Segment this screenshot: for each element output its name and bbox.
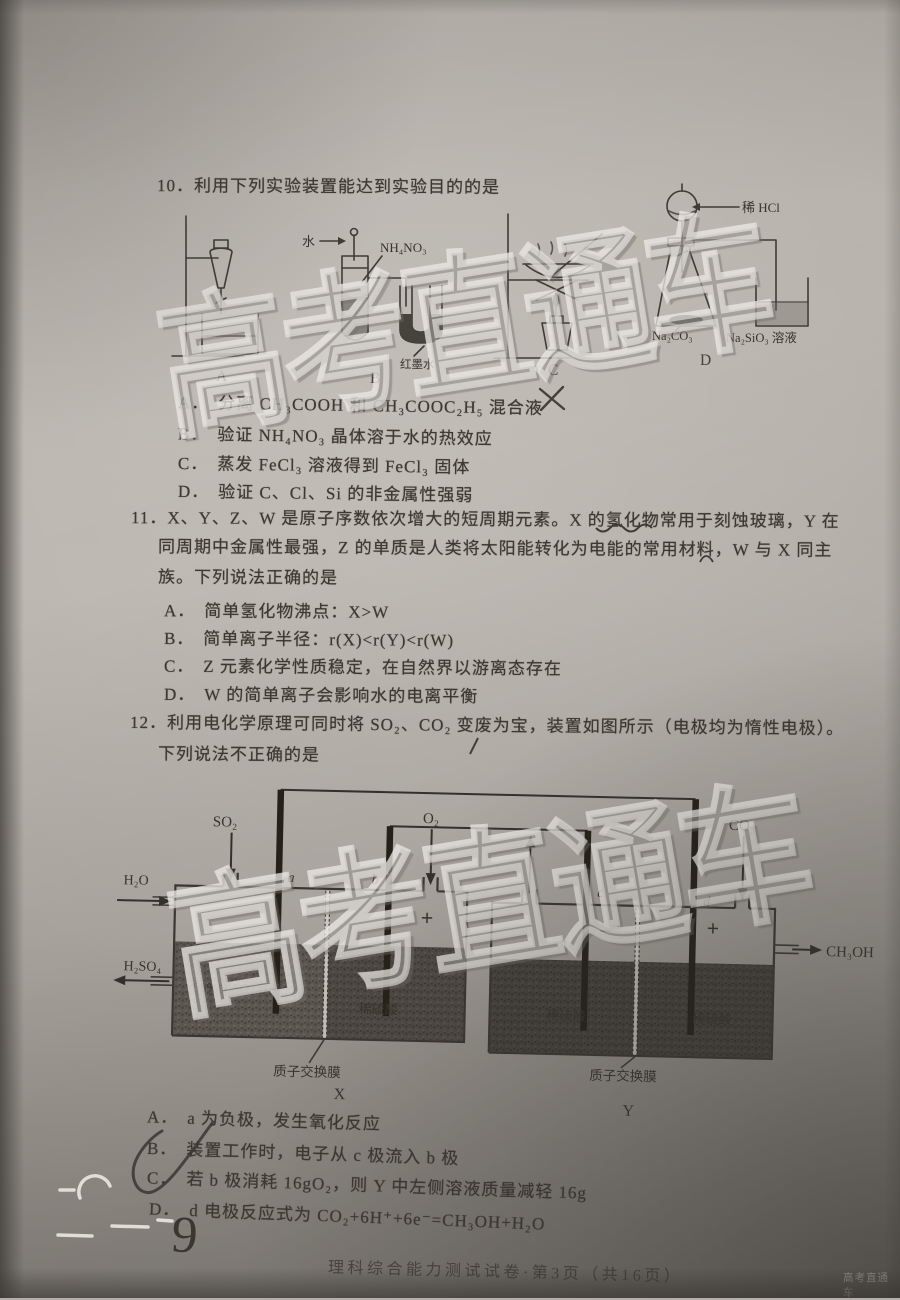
- apparatus-c-label: C: [548, 362, 558, 380]
- q11-option-b-text: 简单离子半径：r(X)<r(Y)<r(W): [203, 629, 454, 650]
- q12-option-a-letter: A．: [147, 1102, 179, 1128]
- q11-stem-line3: 族。下列说法正确的是: [158, 563, 338, 589]
- q12-option-b-text: 装置工作时，电子从 c 极流入 b 极: [186, 1140, 460, 1168]
- inner-wire: [390, 826, 588, 830]
- q12-option-d: D．d 电极反应式为 CO₂+6H⁺+6e⁻=CH₃OH+H₂O: [149, 1194, 546, 1234]
- co2-label: CO₂: [729, 818, 755, 835]
- water-label: 水: [302, 234, 315, 249]
- q11-option-d-text: W 的简单离子会影响水的电离平衡: [204, 685, 478, 706]
- membrane-y-label: 质子交换膜: [589, 1067, 657, 1085]
- ammonium-nitrate-label: NH₄NO₃: [380, 240, 427, 255]
- q11-option-c-letter: C．: [164, 652, 195, 677]
- minus-sign-c: −: [598, 919, 612, 945]
- membrane-x-label: 质子交换膜: [273, 1063, 341, 1081]
- q11-option-b: B．简单离子半径：r(X)<r(Y)<r(W): [164, 624, 454, 651]
- dilute-acid-x-label: 稀硫酸: [359, 1002, 398, 1018]
- electrolysis-diagram: a b c d SO₂ O₂ CO₂ H₂O H₂SO₄ CH₃OH +: [108, 772, 895, 1125]
- q10-option-c-letter: C．: [178, 449, 209, 474]
- q10-option-a: A．分离 CH₃COOH 和 CH₃COOC₂H₅ 混合液: [178, 388, 543, 419]
- q12-option-d-text: d 电极反应式为 CO₂+6H⁺+6e⁻=CH₃OH+H₂O: [189, 1201, 546, 1234]
- q11-stem-line1: 11．X、Y、Z、W 是原子序数依次增大的短周期元素。X 的氢化物常用于刻蚀玻璃…: [131, 503, 840, 532]
- apparatus-a-drawing: [170, 210, 295, 375]
- q12-option-b-letter: B．: [147, 1134, 178, 1160]
- q12-stem-line2: 下列说法不正确的是: [158, 739, 320, 765]
- red-ink-label: 红墨水: [400, 358, 435, 371]
- q12-option-b: B．装置工作时，电子从 c 极流入 b 极: [147, 1134, 460, 1169]
- plus-sign-d: +: [706, 915, 719, 940]
- q12-option-d-letter: D．: [149, 1194, 181, 1220]
- electrode-b-label: b: [371, 873, 378, 888]
- h2so4-label: H₂SO₄: [123, 959, 161, 975]
- apparatus-c-drawing: [490, 210, 650, 375]
- apparatus-b-drawing: 水 NH₄NO₃ 红墨水: [296, 226, 466, 376]
- q11-option-c: C．Z 元素化学性质稳定，在自然界以游离态存在: [164, 652, 562, 680]
- o2-label: O₂: [423, 811, 439, 827]
- q10-option-c: C．蒸发 FeCl₃ 溶液得到 FeCl₃ 固体: [178, 449, 471, 478]
- ch3oh-label: CH₃OH: [826, 944, 874, 961]
- q10-option-a-letter: A．: [178, 388, 210, 413]
- apparatus-b-label: B: [370, 370, 380, 388]
- q10-option-b-text: 验证 NH₄NO₃ 晶体溶于水的热效应: [217, 425, 493, 448]
- q10-option-b-letter: B．: [178, 420, 209, 445]
- apparatus-d-label: D: [700, 352, 711, 370]
- q10-option-d-text: 验证 C、Cl、Si 的非金属性强弱: [218, 483, 473, 506]
- q10-option-d: D．验证 C、Cl、Si 的非金属性强弱: [178, 477, 474, 506]
- gas-out-arrow: [525, 835, 535, 847]
- q11-option-a: A．简单氢化物沸点：X>W: [164, 596, 389, 623]
- q11-stem-line2: 同周期中金属性最强，Z 的单质是人类将太阳能转化为电能的常用材料，W 与 X 同…: [158, 532, 833, 561]
- outer-wire: [281, 790, 696, 799]
- q10-option-c-text: 蒸发 FeCl₃ 溶液得到 FeCl₃ 固体: [217, 455, 470, 478]
- q10-option-a-text: 分离 CH₃COOH 和 CH₃COOC₂H₅ 混合液: [218, 394, 543, 418]
- q11-option-d: D．W 的简单离子会影响水的电离平衡: [164, 680, 478, 707]
- left-solution-label: 50%H₂SO₄溶液: [193, 980, 282, 997]
- q11-option-a-letter: A．: [164, 596, 195, 621]
- cell-x-label: X: [334, 1086, 346, 1103]
- q10-option-b: B．验证 NH₄NO₃ 晶体溶于水的热效应: [178, 420, 493, 450]
- q12-option-a-text: a 为负极，发生氧化反应: [187, 1109, 381, 1134]
- q12-option-c-letter: C．: [147, 1163, 178, 1189]
- apparatus-d-drawing: 稀 HCl Na₂CO₃ Na₂SiO₃ 溶液: [638, 180, 853, 375]
- watermark-small: 高考直通车: [843, 1270, 900, 1300]
- q11-option-b-letter: B．: [164, 624, 195, 649]
- q12-stem-line1: 12．利用电化学原理可同时将 SO₂、CO₂ 变废为宝，装置如图所示（电极均为惰…: [130, 708, 844, 739]
- sodium-silicate-label: Na₂SiO₃ 溶液: [726, 330, 797, 345]
- q10-stem: 10．利用下列实验装置能达到实验目的的是: [157, 171, 500, 198]
- q11-option-d-letter: D．: [164, 680, 195, 705]
- dilute-acid-y-right-label: 稀硫酸: [692, 1011, 731, 1027]
- q11-option-a-text: 简单氢化物沸点：X>W: [204, 601, 389, 621]
- dilute-hcl-label: 稀 HCl: [742, 200, 780, 215]
- exam-page: 10．利用下列实验装置能达到实验目的的是 A 水 NH₄NO₃ 红墨水 B: [0, 0, 900, 1298]
- electrode-c-label: c: [597, 886, 604, 901]
- dilute-acid-y-left-label: 稀硫酸: [546, 1008, 585, 1024]
- page-footer: 理科综合能力测试试卷·第3页（共16页）: [328, 1253, 684, 1286]
- apparatus-a-label: A: [216, 368, 227, 386]
- cell-y-label: Y: [622, 1103, 634, 1120]
- so2-label: SO₂: [213, 814, 238, 831]
- q10-option-d-letter: D．: [178, 477, 210, 502]
- h2o-label: H₂O: [123, 873, 148, 889]
- q11-option-c-text: Z 元素化学性质稳定，在自然界以游离态存在: [203, 657, 562, 679]
- electrode-a-label: a: [287, 871, 294, 886]
- sodium-carbonate-label: Na₂CO₃: [652, 329, 693, 343]
- plus-sign-b: +: [420, 905, 433, 930]
